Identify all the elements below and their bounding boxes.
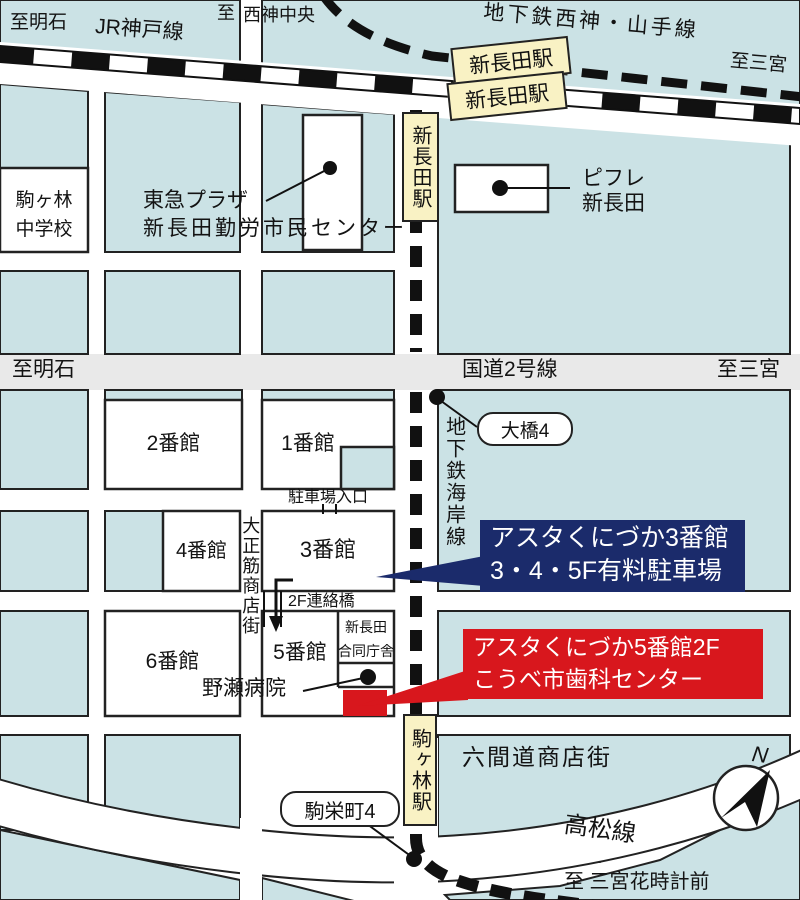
tokyu-plaza-dot bbox=[323, 161, 337, 175]
label-bldg-5: 5番館 bbox=[258, 641, 342, 666]
shin-nagata-station-strip: 新長田駅 bbox=[402, 112, 439, 222]
ohashi4-text: 大橋4 bbox=[501, 416, 550, 443]
dental-callout-line2: こうべ市歯科センター bbox=[473, 663, 763, 695]
komaeicho4-pill: 駒栄町4 bbox=[280, 791, 400, 827]
label-bldg-2: 2番館 bbox=[105, 432, 242, 457]
komaeicho4-dot bbox=[406, 851, 422, 867]
label-nose-hospital: 野瀬病院 bbox=[202, 677, 286, 702]
school-line1: 駒ヶ林 bbox=[0, 186, 88, 215]
godo-line1: 新長田 bbox=[338, 615, 394, 639]
compass-n-label: N bbox=[750, 741, 769, 769]
label-to-hanadokei: 至 三宮花時計前 bbox=[564, 871, 710, 895]
parking-callout-line2: 3・4・5F有料駐車場 bbox=[490, 555, 745, 588]
label-2f-bridge: 2F連絡橋 bbox=[288, 593, 355, 612]
label-junior-high: 駒ヶ林 中学校 bbox=[0, 186, 88, 244]
label-seishin-chuo: 西神中央 bbox=[243, 5, 315, 26]
station-box-2-text: 新長田駅 bbox=[464, 77, 551, 116]
station-strip-text: 新長田駅 bbox=[406, 125, 435, 209]
label-kinro-center: 新長田勤労市民センター bbox=[143, 217, 407, 242]
label-bldg-4: 4番館 bbox=[163, 540, 240, 564]
dental-callout: アスタくにづか5番館2F こうべ市歯科センター bbox=[463, 629, 763, 699]
ohashi4-pill: 大橋4 bbox=[477, 412, 573, 446]
label-bldg-3: 3番館 bbox=[262, 537, 394, 563]
godochosha-dot bbox=[360, 669, 376, 685]
parking-callout-line1: アスタくにづか3番館 bbox=[490, 522, 745, 555]
dental-callout-line1: アスタくにづか5番館2F bbox=[473, 631, 763, 663]
compass-icon bbox=[714, 766, 778, 830]
komagabayashi-strip-text: 駒ヶ林駅 bbox=[406, 728, 435, 812]
label-bldg-6: 6番館 bbox=[105, 650, 240, 675]
route2-road bbox=[0, 354, 800, 390]
parking-callout: アスタくにづか3番館 3・4・5F有料駐車場 bbox=[480, 520, 745, 592]
label-piffle: ピフレ 新長田 bbox=[582, 166, 645, 216]
label-route2-to-sannomiya: 至三宮 bbox=[717, 358, 780, 383]
label-parking-entrance: 駐車場入口 bbox=[288, 489, 368, 508]
label-route2-name: 国道2号線 bbox=[462, 358, 558, 383]
label-taisho-suji: 大正筋商店街 bbox=[239, 516, 260, 636]
godo-line2: 合同庁舎 bbox=[338, 639, 394, 663]
label-rokkenmichi: 六間道商店街 bbox=[462, 744, 612, 771]
label-tokyu-plaza: 東急プラザ bbox=[143, 189, 248, 214]
route-map: 至明石 JR神戸線 至 西神中央 地下鉄西神・山手線 至三宮 新長田駅 新長田駅… bbox=[0, 0, 800, 900]
label-bldg-1: 1番館 bbox=[262, 432, 354, 457]
label-to-prefix: 至 bbox=[217, 3, 235, 24]
label-route2-to-akashi: 至明石 bbox=[12, 358, 75, 383]
komaeicho4-text: 駒栄町4 bbox=[304, 795, 375, 824]
label-to-akashi-top: 至明石 bbox=[10, 12, 67, 34]
komagabayashi-station-strip: 駒ヶ林駅 bbox=[403, 714, 437, 826]
piffle-line1: ピフレ bbox=[582, 166, 645, 191]
school-line2: 中学校 bbox=[0, 215, 88, 244]
label-kaigan-line: 地下鉄海岸線 bbox=[441, 416, 465, 548]
piffle-dot bbox=[492, 180, 508, 196]
piffle-line2: 新長田 bbox=[582, 191, 645, 216]
taisho-road-junction bbox=[240, 818, 262, 900]
label-godochosha: 新長田 合同庁舎 bbox=[338, 615, 394, 663]
ohashi4-dot bbox=[429, 389, 445, 405]
